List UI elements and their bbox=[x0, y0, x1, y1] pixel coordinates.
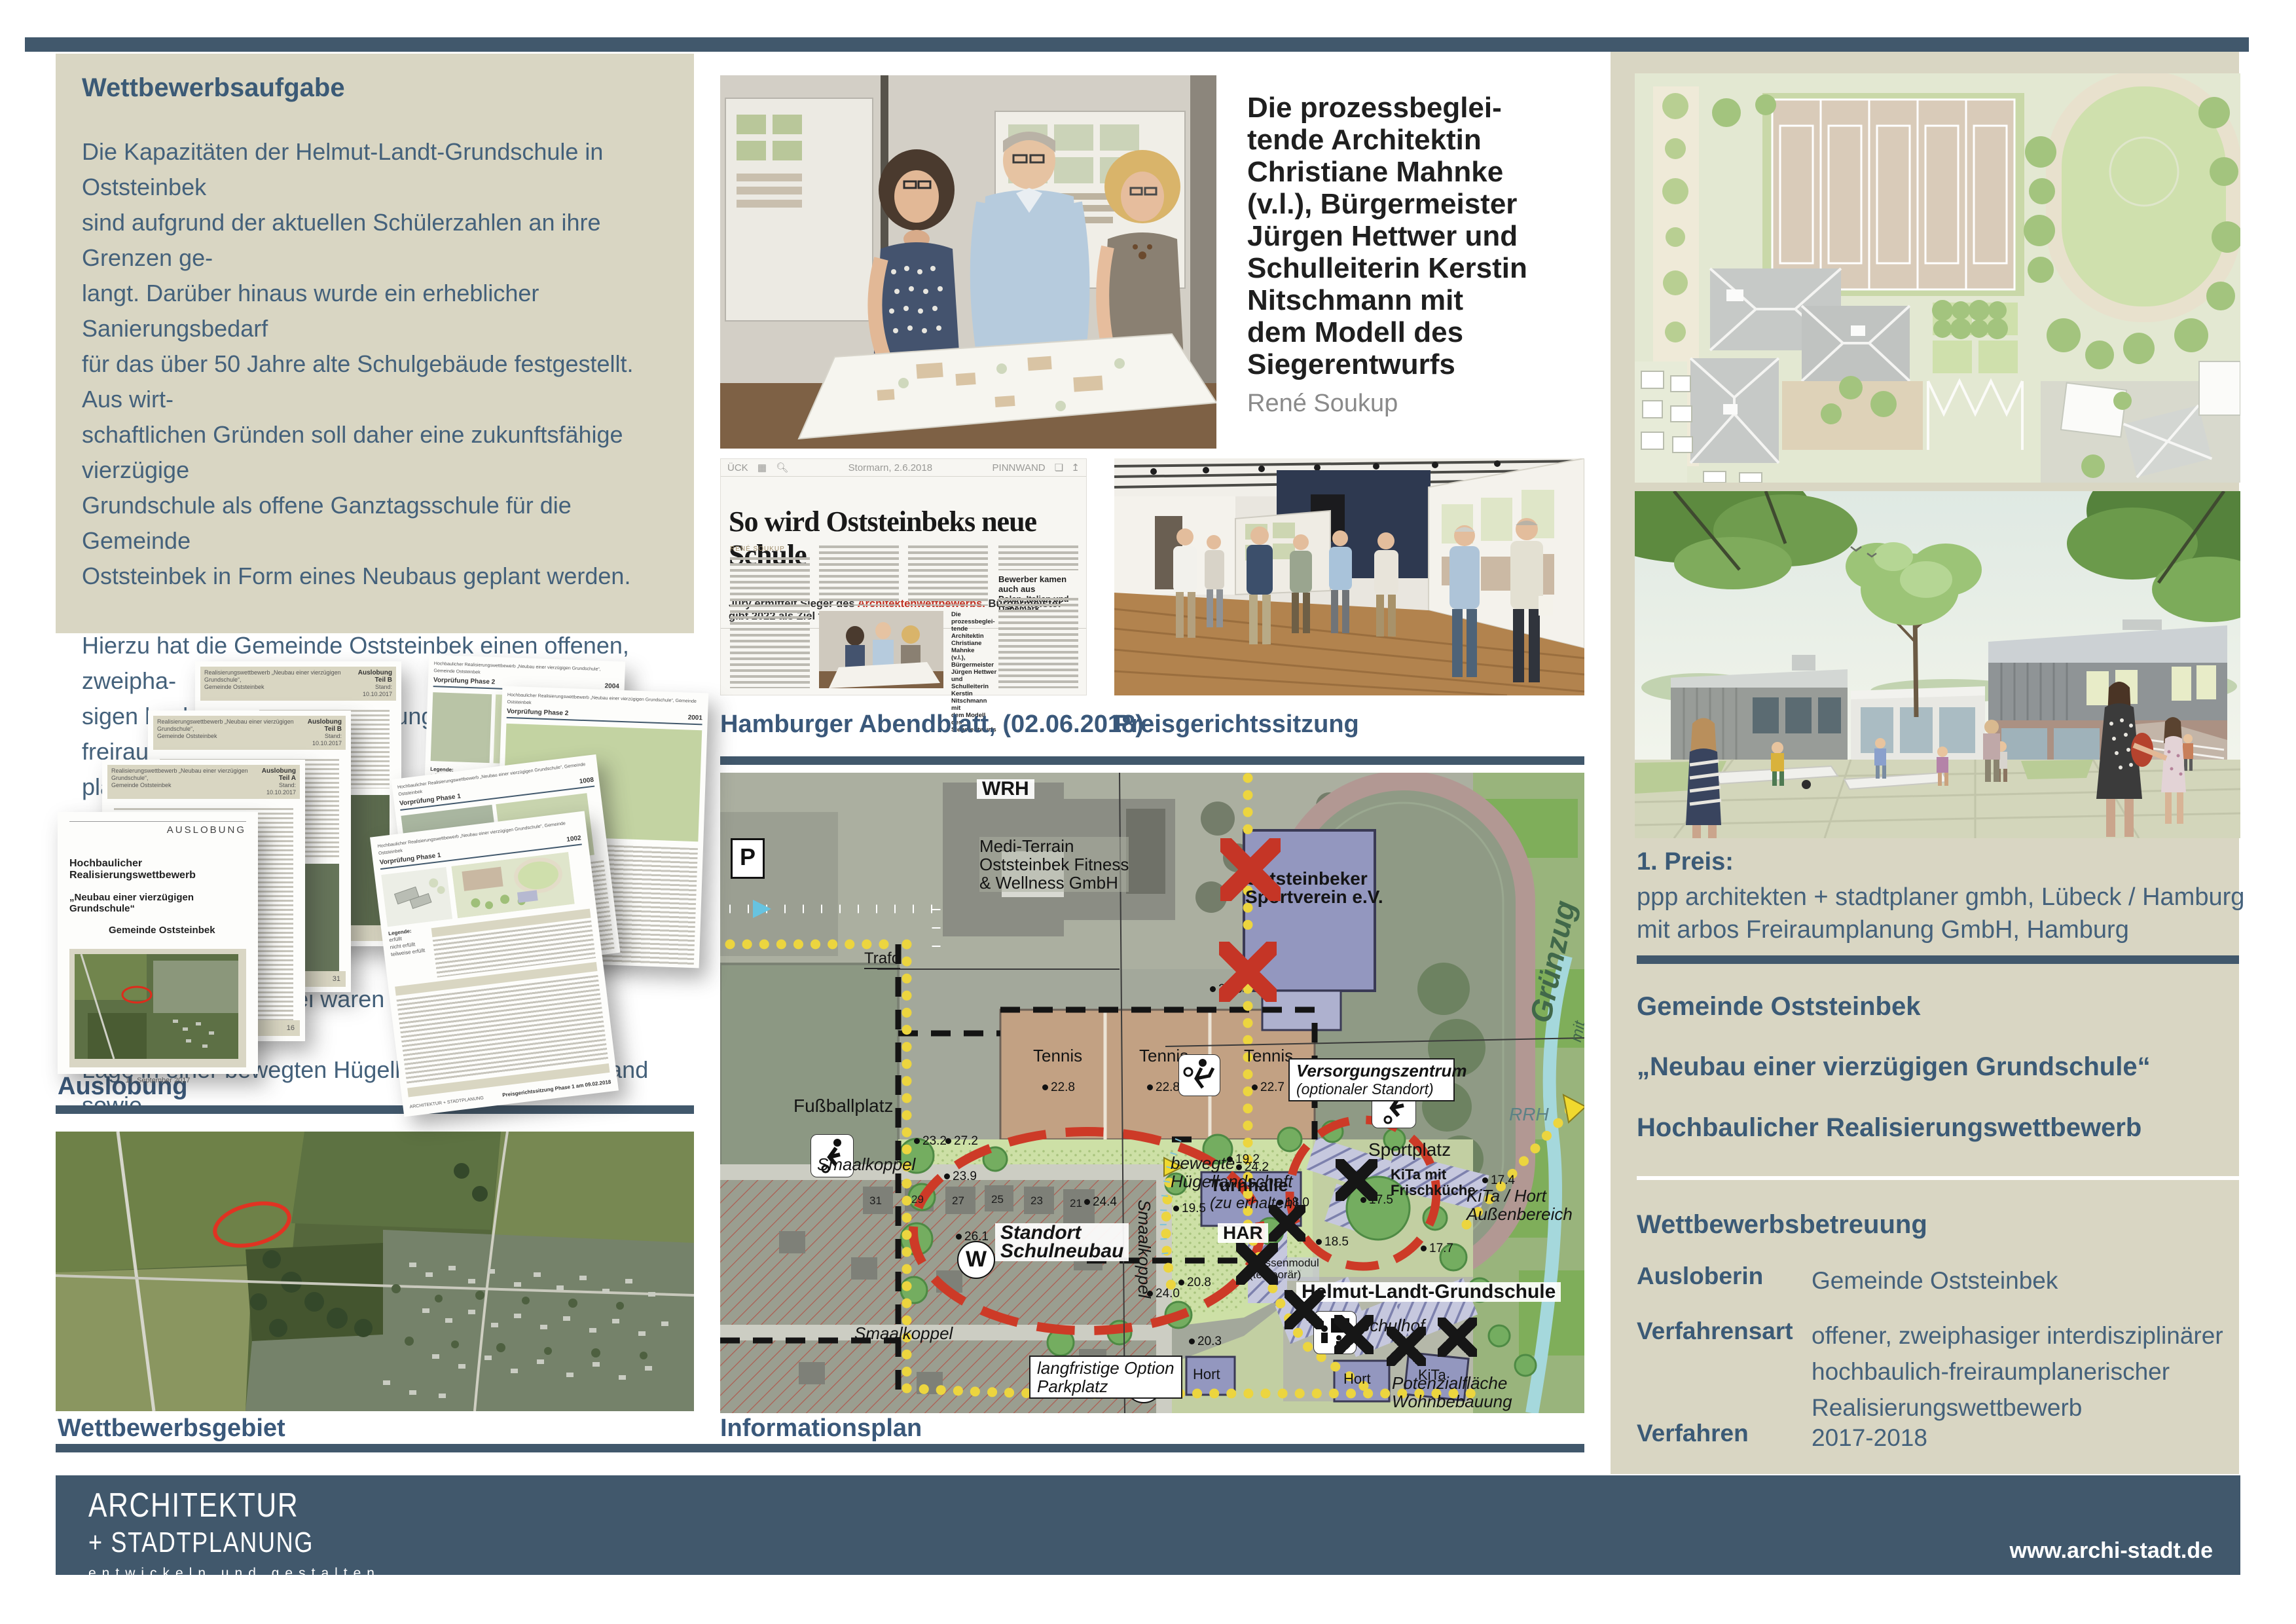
task-section: Wettbewerbsaufgabe Die Kapazitäten der H… bbox=[56, 54, 694, 633]
versorgung-line2: (optionaler Standort) bbox=[1296, 1080, 1447, 1098]
prize-line-2: mit arbos Freiraumplanung GmbH, Hamburg bbox=[1637, 913, 2129, 946]
detail-label-verfahren: Verfahren bbox=[1637, 1420, 1749, 1447]
map-label-langfristige-option: langfristige Option Parkplatz bbox=[1029, 1356, 1182, 1399]
tennis-icon bbox=[1178, 1054, 1220, 1096]
detail-value-verfahrensart: offener, zweiphasiger interdisziplinärer… bbox=[1812, 1318, 2223, 1426]
elevation: 24.4 bbox=[1084, 1195, 1117, 1209]
project-title: „Neubau einer vierzügigen Grundschule“ bbox=[1637, 1052, 2151, 1082]
cover-tag: AUSLOBUNG bbox=[69, 821, 246, 836]
person-left bbox=[872, 149, 961, 383]
grid-icon: ▦ bbox=[757, 462, 767, 473]
entry-number: 1002 bbox=[566, 834, 581, 843]
prize-heading: 1. Preis: bbox=[1637, 848, 1734, 876]
x-mark bbox=[1285, 1290, 1324, 1329]
doc-header-text: Realisierungswettbewerb „Neubau einer vi… bbox=[111, 767, 253, 796]
map-label-kita-frischkueche: KiTa mit Frischküche bbox=[1391, 1167, 1476, 1198]
model-photo-caption-text: Die prozessbeglei- tende Architektin Chr… bbox=[1247, 92, 1584, 380]
newspaper-toolbar: ÜCK ▦ 🔍︎ Stormarn, 2.6.2018 PINNWAND ❏ ↥ bbox=[721, 459, 1086, 477]
map-label-versorgungszentrum: Versorgungszentrum (optionaler Standort) bbox=[1288, 1058, 1455, 1101]
caption-preisgerichtssitzung: Preisgerichtssitzung bbox=[1114, 710, 1359, 739]
turnhalle-line1: Turnhalle bbox=[1210, 1176, 1298, 1194]
detail-value-ausloberin: Gemeinde Oststeinbek bbox=[1812, 1263, 2058, 1299]
doc-page-number: 16 bbox=[287, 1024, 295, 1032]
map-label-hort-1: Hort bbox=[1193, 1365, 1220, 1384]
red-x-mark-1 bbox=[1220, 838, 1281, 901]
cover-line2: „Neubau einer vierzügigen Grundschule“ bbox=[69, 892, 246, 914]
map-label-medi-terrain: Medi-Terrain Oststeinbek Fitness & Welln… bbox=[979, 837, 1129, 892]
footer-logo-line2: + STADTPLANUNG bbox=[88, 1526, 328, 1559]
caption-wettbewerbsgebiet: Wettbewerbsgebiet bbox=[58, 1414, 285, 1443]
house-number: 31 bbox=[869, 1194, 882, 1208]
map-w-marker-1: W bbox=[957, 1241, 995, 1279]
cover-line3: Gemeinde Oststeinbek bbox=[109, 925, 246, 936]
map-label-tennis-1: Tennis bbox=[1033, 1046, 1082, 1065]
top-accent-bar bbox=[25, 37, 2249, 52]
detail-value-verfahren: 2017-2018 bbox=[1812, 1420, 1927, 1456]
divider-middle bbox=[720, 756, 1584, 765]
doc-teil-label: Auslobung Teil A bbox=[253, 767, 296, 782]
auslobung-doc-stack: Realisierungswettbewerb „Neubau einer vi… bbox=[56, 655, 422, 1087]
map-label-wrh: WRH bbox=[977, 779, 1034, 799]
map-label-sportplatz: Sportplatz bbox=[1368, 1141, 1451, 1159]
map-label-rrh: RRH bbox=[1509, 1105, 1549, 1124]
x-mark bbox=[1438, 1318, 1477, 1357]
map-label-fussballplatz: Fußballplatz bbox=[793, 1097, 894, 1115]
cover-aerial-thumb bbox=[75, 954, 238, 1059]
image-siegerentwurf-lageplan bbox=[1635, 73, 2240, 483]
elevation: 20.8 bbox=[1178, 1276, 1211, 1290]
map-label-smaalkoppel-2: Smaalkoppel bbox=[854, 1324, 953, 1342]
doc-page-number: 31 bbox=[333, 975, 340, 983]
house-number: 29 bbox=[911, 1193, 924, 1206]
poster-page: Wettbewerbsaufgabe Die Kapazitäten der H… bbox=[0, 0, 2296, 1624]
news-column-1 bbox=[730, 557, 810, 688]
elevation: 23.2 bbox=[914, 1134, 947, 1149]
house-number: 21 bbox=[1070, 1197, 1082, 1210]
map-label-standort-schulneubau: Standort Schulneubau bbox=[995, 1223, 1129, 1261]
map-label-smaalkoppel-3: Smaalkoppel bbox=[1135, 1200, 1154, 1298]
elevation: 22.7 bbox=[1252, 1080, 1285, 1095]
doc-header-text: Realisierungswettbewerb „Neubau einer vi… bbox=[204, 669, 348, 698]
elevation: 20.3 bbox=[1189, 1335, 1222, 1349]
project-subtitle: Hochbaulicher Realisierungswettbewerb bbox=[1637, 1113, 2141, 1143]
model-photo-caption-credit: René Soukup bbox=[1247, 390, 1584, 418]
task-title: Wettbewerbsaufgabe bbox=[82, 73, 668, 103]
map-label-har: HAR bbox=[1218, 1223, 1268, 1243]
entry-number: 1008 bbox=[579, 777, 594, 786]
map-label-grundschule: Helmut-Landt-Grundschule bbox=[1296, 1282, 1561, 1302]
search-icon: 🔍︎ bbox=[776, 462, 788, 473]
entry-number: 2001 bbox=[687, 714, 702, 722]
cover-line1: Hochbaulicher Realisierungswettbewerb bbox=[69, 858, 246, 881]
footer-website: www.archi-stadt.de bbox=[2010, 1538, 2213, 1564]
details-heading: Wettbewerbsbetreuung bbox=[1637, 1210, 1927, 1240]
news-column-4 bbox=[998, 545, 1078, 570]
map-label-potenzialflaeche: Potenzialfläche Wohnbebauung bbox=[1392, 1374, 1512, 1411]
versorgung-line1: Versorgungszentrum bbox=[1296, 1061, 1447, 1080]
detail-label-ausloberin: Ausloberin bbox=[1637, 1263, 1763, 1290]
elevation: 27.2 bbox=[945, 1134, 978, 1149]
cover-photo-frame bbox=[69, 949, 246, 1067]
detail-label-verfahrensart: Verfahrensart bbox=[1637, 1318, 1793, 1345]
newspaper-byline: RENÉ SOUKUP bbox=[730, 545, 785, 553]
elevation: 19.2 bbox=[1227, 1153, 1260, 1167]
news-column-3 bbox=[908, 545, 988, 606]
vorpruefung-page-1002: Hochbaulicher Realisierungswettbewerb „N… bbox=[370, 811, 619, 1116]
aerial-photo-wettbewerbsgebiet bbox=[56, 1132, 694, 1411]
photo-preisgerichtssitzung bbox=[1114, 458, 1584, 695]
cover-date: 11. September 2017 bbox=[69, 1077, 246, 1084]
photo-model-presentation bbox=[720, 75, 1216, 449]
informationsplan-map: WRH Medi-Terrain Oststeinbek Fitness & W… bbox=[720, 773, 1584, 1413]
model-photo-caption: Die prozessbeglei- tende Architektin Chr… bbox=[1247, 92, 1584, 418]
doc-header-text: Realisierungswettbewerb „Neubau einer vi… bbox=[157, 718, 299, 747]
news-inner-photo bbox=[819, 611, 943, 688]
doc-teil-label: Auslobung Teil B bbox=[299, 718, 342, 733]
elevation: 17.7 bbox=[1421, 1242, 1453, 1256]
divider-bottom bbox=[56, 1444, 1584, 1452]
map-label-hort-2: Hort bbox=[1343, 1370, 1371, 1388]
elevation: 22.8 bbox=[1042, 1080, 1075, 1095]
map-label-tennis-3: Tennis bbox=[1244, 1046, 1293, 1065]
x-mark bbox=[1269, 1205, 1305, 1242]
task-paragraph-1: Die Kapazitäten der Helmut-Landt-Grundsc… bbox=[82, 134, 668, 594]
elevation: 23.9 bbox=[944, 1170, 977, 1184]
newspaper-date: Stormarn, 2.6.2018 bbox=[848, 462, 932, 473]
caption-informationsplan: Informationsplan bbox=[720, 1414, 922, 1443]
elevation: 19.5 bbox=[1173, 1202, 1206, 1216]
x-mark bbox=[1387, 1327, 1426, 1366]
newspaper-body: RENÉ SOUKUP Bewerber kamen auch aus Pole… bbox=[730, 545, 1078, 688]
divider-white bbox=[1637, 1176, 2239, 1180]
footer-logo-line1: ARCHITEKTUR bbox=[88, 1486, 328, 1525]
red-x-mark-2 bbox=[1219, 942, 1277, 1002]
doc-stand-label: Stand: 10.10.2017 bbox=[348, 684, 392, 698]
project-client: Gemeinde Oststeinbek bbox=[1637, 992, 1920, 1022]
house-number: 23 bbox=[1030, 1194, 1043, 1208]
x-mark bbox=[1236, 1243, 1278, 1285]
divider-left bbox=[56, 1105, 694, 1114]
bookmark-icon: ❏ bbox=[1055, 462, 1063, 473]
footer-logo-line3: entwickeln und gestalten bbox=[88, 1566, 380, 1581]
map-label-smaalkoppel-1: Smaalkoppel bbox=[817, 1155, 915, 1173]
map-label-kita-hort-aussenbereich: KiTa / Hort Außenbereich bbox=[1467, 1187, 1573, 1223]
caption-hamburger-abendblatt: Hamburger Abendblatt, (02.06.2018) bbox=[720, 710, 1144, 739]
back-text-fragment: ÜCK bbox=[727, 462, 748, 473]
thumb-massing-model bbox=[381, 867, 452, 927]
news-column-2 bbox=[819, 545, 899, 606]
image-siegerentwurf-perspektive bbox=[1635, 491, 2240, 838]
divider-right bbox=[1637, 955, 2239, 964]
house-number: 27 bbox=[952, 1194, 964, 1208]
prize-line-1: ppp architekten + stadtplaner gmbh, Lübe… bbox=[1637, 881, 2244, 913]
pinnwand-label: PINNWAND bbox=[993, 462, 1046, 473]
auslobung-cover-page: AUSLOBUNG Hochbaulicher Realisierungswet… bbox=[58, 812, 258, 1074]
share-icon: ↥ bbox=[1071, 462, 1080, 473]
thumb-rendering bbox=[431, 692, 492, 763]
phase-label: Vorprüfung Phase 2 bbox=[433, 676, 496, 686]
news-column-4b bbox=[998, 598, 1078, 688]
house-number: 25 bbox=[991, 1193, 1004, 1206]
vorpruefung-doc-stack: Hochbaulicher Realisierungswettbewerb „N… bbox=[383, 652, 723, 1110]
thumb-site-plan bbox=[451, 852, 574, 918]
map-parking-icon: P bbox=[731, 838, 765, 879]
x-mark bbox=[1336, 1159, 1377, 1201]
elevation: 22.8 bbox=[1147, 1080, 1180, 1095]
footer: ARCHITEKTUR + STADTPLANUNG entwickeln un… bbox=[56, 1475, 2240, 1575]
doc-stand-label: Stand: 10.10.2017 bbox=[253, 782, 296, 796]
newspaper-clipping: ÜCK ▦ 🔍︎ Stormarn, 2.6.2018 PINNWAND ❏ ↥… bbox=[720, 458, 1087, 695]
x-mark bbox=[1334, 1315, 1374, 1354]
doc-teil-label: Auslobung Teil B bbox=[348, 669, 392, 684]
map-label-trafo: Trafo bbox=[864, 950, 900, 969]
phase-label: Vorprüfung Phase 2 bbox=[507, 708, 569, 717]
footer-logo: ARCHITEKTUR + STADTPLANUNG entwickeln un… bbox=[88, 1486, 380, 1581]
doc-stand-label: Stand: 10.10.2017 bbox=[299, 733, 342, 747]
elevation: 17.4 bbox=[1482, 1173, 1515, 1188]
doc-footer-left: ARCHITEKTUR + STADTPLANUNG bbox=[409, 1095, 484, 1111]
elevation: 18.5 bbox=[1316, 1235, 1349, 1249]
